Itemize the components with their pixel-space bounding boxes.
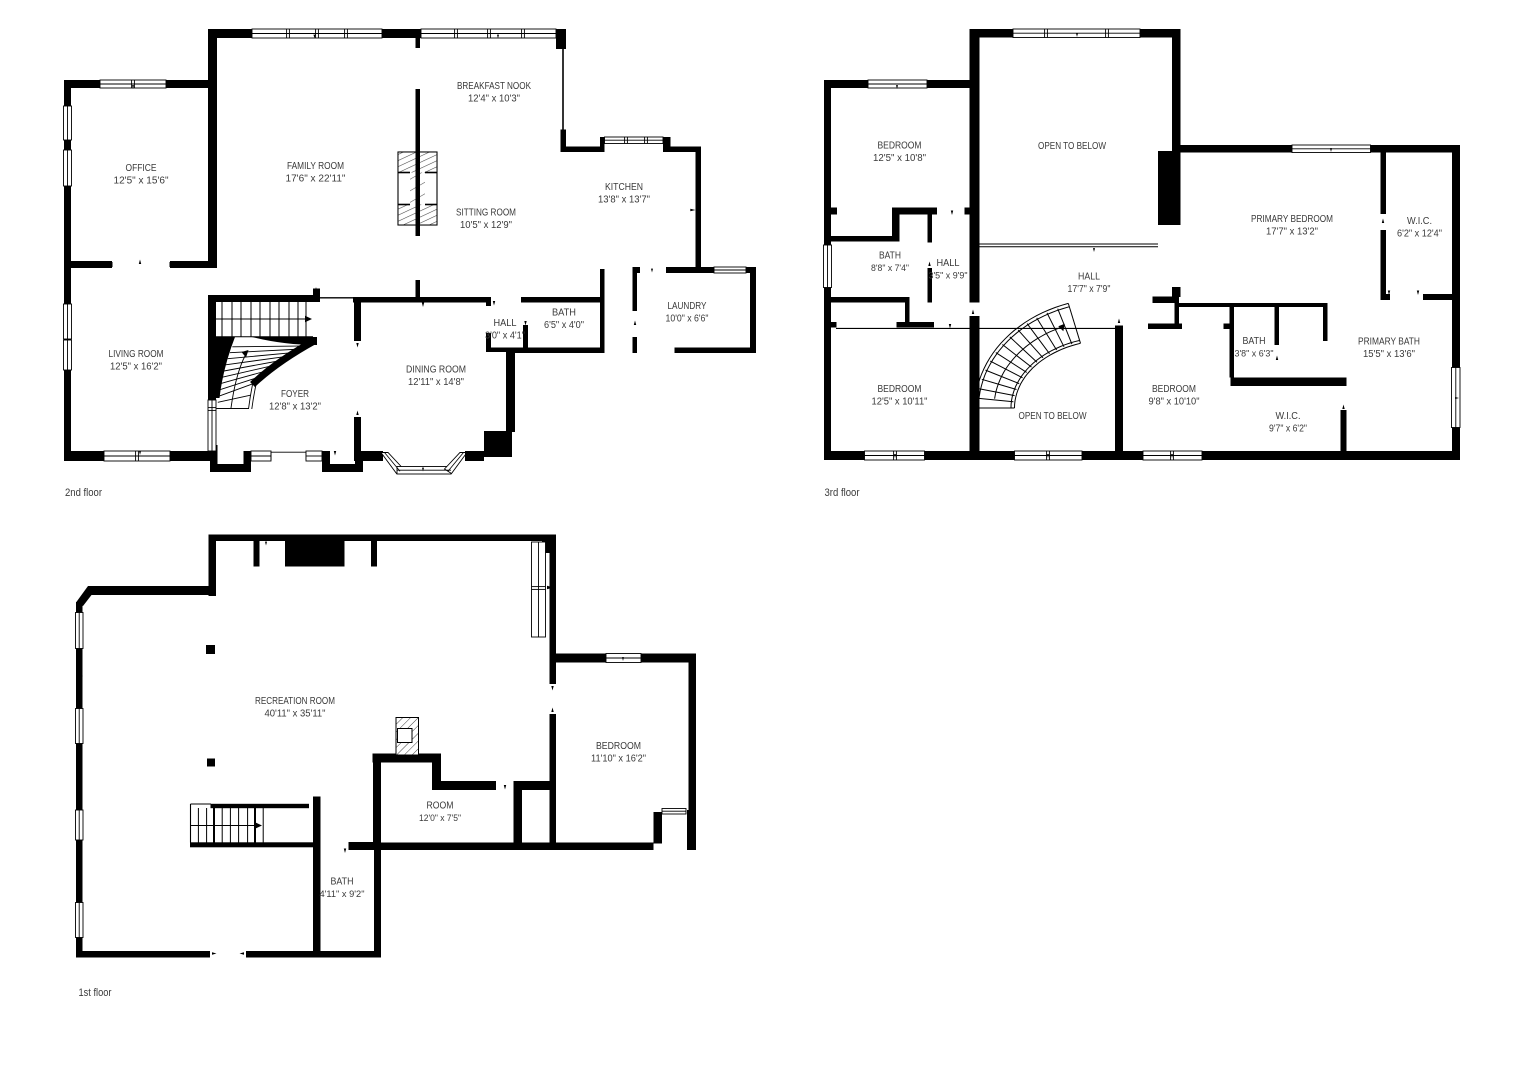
- svg-text:6'2" x 12'4": 6'2" x 12'4": [1397, 229, 1442, 240]
- svg-text:40'11" x 35'11": 40'11" x 35'11": [265, 709, 326, 720]
- svg-text:2nd floor: 2nd floor: [65, 487, 102, 499]
- svg-text:12'8" x 13'2": 12'8" x 13'2": [269, 402, 321, 413]
- svg-text:12'5" x 10'8": 12'5" x 10'8": [873, 153, 926, 164]
- svg-text:PRIMARY BEDROOM: PRIMARY BEDROOM: [1251, 213, 1333, 225]
- svg-text:DINING ROOM: DINING ROOM: [406, 364, 466, 376]
- svg-text:17'6" x 22'11": 17'6" x 22'11": [286, 174, 346, 185]
- svg-text:LIVING ROOM: LIVING ROOM: [109, 348, 164, 360]
- svg-text:W.I.C.: W.I.C.: [1276, 410, 1301, 422]
- svg-text:12'5" x 16'2": 12'5" x 16'2": [110, 362, 162, 373]
- svg-text:11'10" x 16'2": 11'10" x 16'2": [591, 754, 646, 765]
- svg-text:HALL: HALL: [1078, 271, 1100, 283]
- svg-text:BATH: BATH: [879, 251, 901, 262]
- svg-text:BATH: BATH: [331, 877, 354, 888]
- svg-text:HALL: HALL: [937, 258, 960, 269]
- svg-text:BEDROOM: BEDROOM: [1152, 383, 1196, 395]
- svg-text:1st floor: 1st floor: [79, 987, 112, 999]
- svg-text:9'7" x 6'2": 9'7" x 6'2": [1269, 424, 1307, 435]
- svg-text:3rd floor: 3rd floor: [825, 487, 860, 499]
- svg-text:FAMILY ROOM: FAMILY ROOM: [287, 160, 344, 172]
- svg-text:BREAKFAST NOOK: BREAKFAST NOOK: [457, 80, 531, 92]
- svg-text:BEDROOM: BEDROOM: [878, 140, 922, 152]
- svg-text:BATH: BATH: [1243, 336, 1266, 347]
- svg-text:3'5" x 9'9": 3'5" x 9'9": [929, 271, 968, 282]
- svg-text:LAUNDRY: LAUNDRY: [668, 300, 707, 312]
- svg-text:SITTING ROOM: SITTING ROOM: [456, 207, 516, 219]
- svg-text:OPEN TO BELOW: OPEN TO BELOW: [1019, 410, 1087, 422]
- svg-text:4'11" x 9'2": 4'11" x 9'2": [320, 889, 365, 900]
- svg-text:12'0" x 7'5": 12'0" x 7'5": [419, 813, 461, 824]
- svg-text:KITCHEN: KITCHEN: [605, 181, 643, 193]
- svg-text:OPEN TO BELOW: OPEN TO BELOW: [1038, 140, 1106, 152]
- svg-text:17'7" x 7'9": 17'7" x 7'9": [1068, 284, 1111, 295]
- svg-text:12'4" x 10'3": 12'4" x 10'3": [468, 94, 520, 105]
- svg-text:8'8" x 7'4": 8'8" x 7'4": [871, 263, 909, 274]
- svg-text:13'8" x 13'7": 13'8" x 13'7": [598, 195, 650, 206]
- svg-text:15'5" x 13'6": 15'5" x 13'6": [1363, 349, 1415, 360]
- svg-text:ROOM: ROOM: [427, 801, 454, 812]
- svg-text:10'5" x 12'9": 10'5" x 12'9": [460, 220, 512, 231]
- svg-text:3'0" x 4'1": 3'0" x 4'1": [485, 331, 525, 342]
- svg-text:12'5" x 15'6": 12'5" x 15'6": [114, 176, 169, 187]
- svg-text:12'5" x 10'11": 12'5" x 10'11": [872, 397, 928, 408]
- svg-text:6'5" x 4'0": 6'5" x 4'0": [544, 320, 584, 331]
- svg-text:17'7" x 13'2": 17'7" x 13'2": [1266, 227, 1318, 238]
- svg-text:PRIMARY BATH: PRIMARY BATH: [1358, 336, 1420, 348]
- svg-text:10'0" x 6'6": 10'0" x 6'6": [666, 314, 709, 325]
- svg-text:RECREATION ROOM: RECREATION ROOM: [255, 695, 335, 707]
- svg-text:BATH: BATH: [552, 307, 576, 319]
- svg-text:OFFICE: OFFICE: [126, 162, 157, 174]
- svg-text:BEDROOM: BEDROOM: [596, 740, 641, 752]
- svg-text:FOYER: FOYER: [281, 388, 309, 400]
- svg-text:9'8" x 10'10": 9'8" x 10'10": [1149, 397, 1200, 408]
- svg-text:W.I.C.: W.I.C.: [1407, 215, 1432, 227]
- svg-text:12'11" x 14'8": 12'11" x 14'8": [408, 377, 464, 388]
- svg-text:3'8" x 6'3": 3'8" x 6'3": [1235, 349, 1274, 360]
- svg-text:BEDROOM: BEDROOM: [878, 383, 922, 395]
- svg-text:HALL: HALL: [494, 317, 517, 329]
